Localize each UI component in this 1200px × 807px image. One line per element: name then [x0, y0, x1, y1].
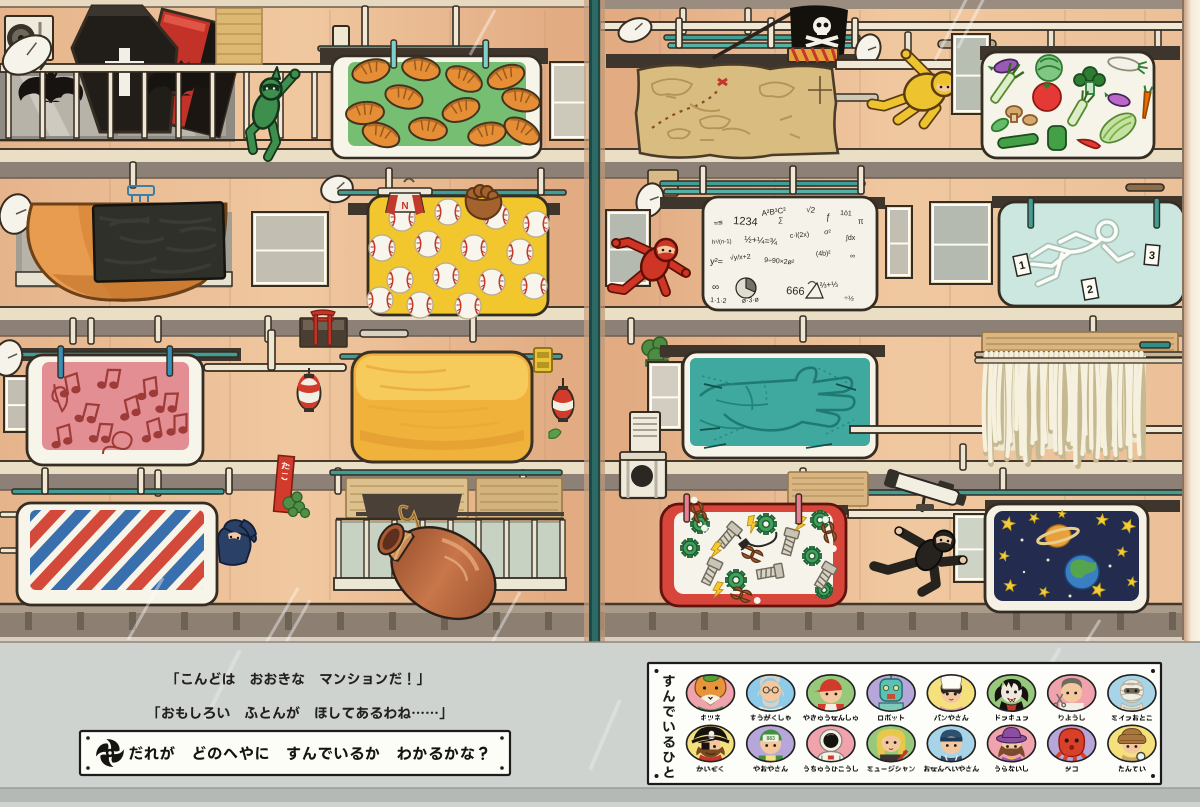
svg-text:π: π: [858, 217, 864, 226]
svg-text:ƒ: ƒ: [825, 212, 831, 222]
svg-text:666: 666: [786, 285, 805, 298]
svg-text:1·1·2: 1·1·2: [710, 297, 727, 305]
svg-text:y²=: y²=: [710, 256, 723, 267]
svg-text:∫dx: ∫dx: [845, 235, 856, 242]
svg-text:3: 3: [1148, 250, 1155, 262]
svg-text:1ō1: 1ō1: [840, 210, 852, 218]
svg-text:√2: √2: [806, 205, 816, 215]
svg-text:≈≡: ≈≡: [713, 218, 723, 228]
svg-text:883: 883: [767, 736, 776, 742]
svg-text:(4b)²: (4b)²: [816, 250, 832, 258]
svg-text:1234: 1234: [733, 215, 758, 229]
svg-text:h¹/(n-1): h¹/(n-1): [712, 239, 732, 246]
svg-text:∞: ∞: [712, 282, 719, 293]
svg-text:∞: ∞: [850, 253, 855, 260]
svg-text:√y/x+2: √y/x+2: [730, 253, 751, 262]
svg-text:σ²: σ²: [824, 229, 832, 236]
svg-text:N: N: [401, 201, 408, 212]
svg-text:⅔+⅓: ⅔+⅓: [820, 280, 839, 290]
svg-text:÷½: ÷½: [844, 294, 855, 303]
svg-text:∑: ∑: [778, 217, 784, 224]
